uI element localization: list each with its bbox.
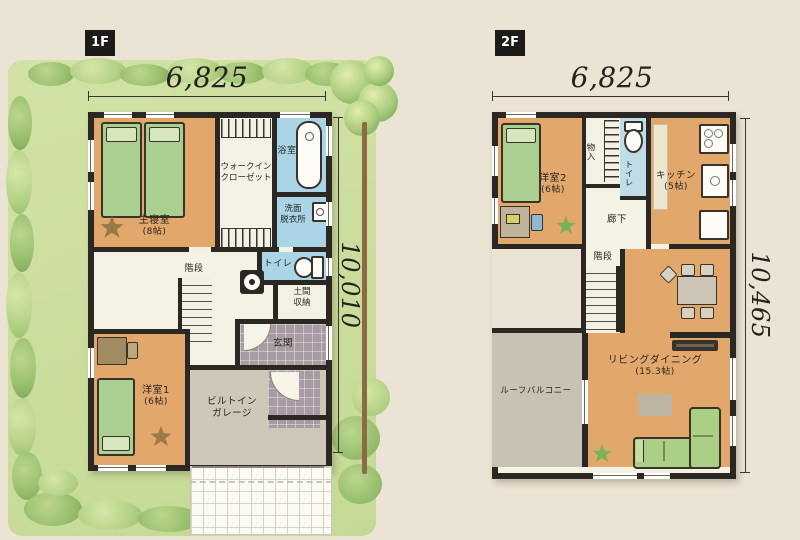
window [326,126,332,156]
desk-item-icon [506,214,520,224]
dimension-tick [728,91,729,101]
pillow-icon [102,436,130,451]
room-size: (6帖) [128,397,184,409]
driveway-dashed-line [190,481,332,483]
kitchen-sink-icon [701,164,729,198]
chair-icon [681,307,695,319]
room-roof-balcony [492,333,582,467]
room-name: 洋室1 [128,384,184,397]
bush [332,416,380,460]
dimension-1f-width: 6,825 [107,60,307,96]
room-label-wic: ウォークイン クローゼット [218,162,274,184]
bush [24,492,82,526]
room-name: トイレ [263,259,293,271]
room-label-hallway: 廊下 [592,214,642,226]
wall [586,184,620,188]
dining-table-icon [677,276,717,305]
tv-board-icon [672,340,718,351]
window [280,112,310,118]
room-name: ウォークイン [218,162,274,173]
sofa-seam [663,441,665,461]
room-size: (8帖) [94,227,215,239]
wall [620,196,646,200]
basin-icon [316,208,324,216]
room-label-western2: 洋室2 (6帖) [524,172,582,197]
building-notch [492,249,581,333]
room-label-garage: ビルトイン ガレージ [182,396,282,421]
drain-icon [305,132,314,141]
room-label-kitchen: キッチン (5帖) [648,170,704,194]
dimension-tick [492,91,493,101]
window [492,146,498,176]
garage-door-line [192,466,324,468]
room-name: 土間 [278,287,326,298]
bush [12,452,42,500]
room-name: 階段 [170,264,218,276]
dimension-2f-height: 10,465 [749,245,775,345]
bush [8,398,36,456]
window [730,180,736,206]
bush [6,150,32,214]
door-opening [189,247,211,252]
house-2f: 洋室2 (6帖) 物入 トイレ [492,112,736,479]
faucet-icon [710,176,720,186]
tree [364,56,394,86]
driveway [190,466,332,535]
room-label-entrance: 玄関 [240,338,326,350]
window [492,198,498,224]
room-label-bath: 浴室 [274,146,300,158]
closet-rack-icon [221,228,271,247]
room-name: 洋室2 [524,172,582,185]
dimension-tick [333,117,343,118]
room-label-washroom: 洗面 脱衣所 [276,204,310,226]
room-name: 洗面 [276,204,310,215]
stairs-icon [586,266,620,332]
window [730,144,736,172]
sofa-chaise-icon [689,407,721,469]
room-name: ルーフバルコニー [492,386,580,397]
sofa-armrest [636,440,644,462]
bed-icon [101,122,142,218]
floor1-tag: 1F [85,30,115,56]
room-size: (6帖) [524,185,582,197]
room-label-toilet-1f: トイレ [263,259,293,271]
room-name: 脱衣所 [276,215,310,226]
wall [670,332,730,338]
chair-icon [700,307,714,319]
rug-icon [638,394,672,416]
room-name: 物入 [585,143,595,161]
dimension-tick [740,472,750,473]
desk-icon [97,337,127,365]
pillow-icon [506,128,536,143]
bush [10,214,34,272]
room-name: ガレージ [182,408,282,420]
burner-icon [714,129,723,138]
room-label-living: リビングダイニング (15.3帖) [590,354,720,379]
washer-dot-icon [249,279,255,285]
window [88,348,94,378]
fridge-icon [699,210,729,240]
window [730,416,736,446]
chair-icon [700,264,714,276]
sofa-seam [693,435,713,437]
window [136,465,166,471]
window [326,202,332,226]
room-name: 玄関 [240,338,326,350]
burner-icon [704,139,713,148]
room-name: 廊下 [592,214,642,226]
room-label-closet: 物入 [588,126,600,178]
window [593,473,637,479]
burner-icon [704,129,713,138]
floorplan-canvas: 1F 6,825 10,010 主寝室 (8帖) ウォークイン クローゼット [0,0,800,540]
dimension-tick [325,91,326,101]
window [88,182,94,210]
toilet-tank-icon [311,256,324,279]
bush [338,464,382,504]
room-name: ビルトイン [182,396,282,408]
room-label-doma: 土間 収納 [278,287,326,309]
room-size: (15.3帖) [590,367,720,379]
room-name: キッチン [648,170,704,182]
room-name: クローゼット [218,173,274,184]
tv-board-line [676,344,714,347]
room-name: 主寝室 [94,214,215,227]
chair-icon [127,342,138,359]
pillow-icon [106,127,137,142]
dimension-tick [333,452,343,453]
window [146,112,174,118]
window [88,140,94,172]
stove-icon [699,124,729,154]
washing-machine-icon [240,270,264,294]
window [730,358,736,400]
pillow-icon [149,127,180,142]
bush [28,62,74,86]
toilet-icon [624,129,643,153]
bush [352,378,390,416]
house-1f: 主寝室 (8帖) ウォークイン クローゼット 浴室 洗面 脱衣所 [88,112,332,471]
bush [6,272,32,338]
room-name: 収納 [278,298,326,309]
kitchen-counter [653,124,668,210]
bush [8,96,32,150]
window [104,112,132,118]
room-name: リビングダイニング [590,354,720,367]
bush [10,338,36,398]
room-label-western1: 洋室1 (6帖) [128,384,184,409]
window [98,465,128,471]
bed-icon [144,122,185,218]
dimension-tick [740,118,750,119]
entrance-door [326,326,332,360]
window [326,258,332,276]
room-label-toilet-2f: トイレ [626,152,638,194]
room-size: (5帖) [648,182,704,194]
room-name: 階段 [582,252,624,264]
window [506,112,536,118]
dimension-1f-height: 10,010 [339,235,365,335]
room-label-stairs-1f: 階段 [170,264,218,276]
chair-icon [681,264,695,276]
room-name: 浴室 [274,146,300,158]
chair-icon [531,214,543,231]
dimension-tick [88,91,89,101]
room-label-balcony: ルーフバルコニー [492,386,580,397]
room-label-stairs-2f: 階段 [582,252,624,264]
window [644,473,670,479]
floor2-tag: 2F [495,30,525,56]
dimension-2f-width: 6,825 [512,60,712,96]
balcony-door [582,380,588,424]
room-name: トイレ [623,160,633,187]
bush [78,500,142,530]
room-label-master: 主寝室 (8帖) [94,214,215,239]
bush [38,470,78,496]
closet-rack-icon [221,119,271,138]
